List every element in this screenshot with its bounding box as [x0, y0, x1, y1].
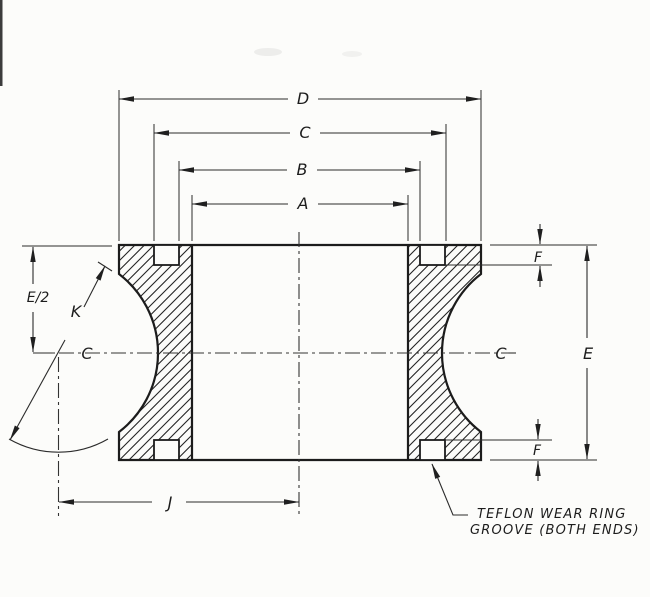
dimension-k: K	[9, 262, 112, 452]
dim-label-f-top: F	[534, 250, 543, 266]
left-wall-hatch	[119, 245, 192, 460]
scan-artifacts	[0, 0, 362, 86]
dim-label-c: C	[299, 123, 311, 142]
dimension-e: E	[583, 246, 594, 459]
note-line-2: GROOVE (BOTH ENDS)	[470, 523, 640, 538]
teflon-note: TEFLON WEAR RING GROOVE (BOTH ENDS)	[432, 464, 640, 538]
wear-ring-groove-top-left	[154, 245, 179, 265]
radius-line	[84, 266, 105, 307]
dimension-c: C	[154, 123, 446, 241]
dim-label-f-bottom: F	[533, 443, 542, 459]
wear-ring-groove-bottom-right	[420, 440, 445, 460]
dim-label-e-half: E/2	[27, 290, 50, 306]
drawing-svg: C C D C B A E/2	[0, 0, 650, 597]
dim-label-d: D	[297, 89, 309, 108]
wear-ring-groove-top-right	[420, 245, 445, 265]
dim-label-b: B	[297, 160, 308, 179]
dim-label-e: E	[583, 344, 594, 363]
dimension-j: J	[59, 493, 299, 512]
radius-line	[10, 340, 65, 440]
dim-label-j: J	[165, 493, 173, 512]
centerline-symbol-left: C	[81, 344, 93, 363]
dimension-a: A	[192, 194, 408, 241]
note-line-1: TEFLON WEAR RING	[477, 507, 627, 522]
centerline-symbol-right: C	[495, 344, 507, 363]
wear-ring-groove-bottom-left	[154, 440, 179, 460]
dim-label-k: K	[71, 302, 83, 321]
leader-line	[432, 464, 468, 515]
dim-label-a: A	[297, 194, 309, 213]
technical-drawing: C C D C B A E/2	[0, 0, 650, 597]
tangent-tick	[98, 262, 112, 271]
